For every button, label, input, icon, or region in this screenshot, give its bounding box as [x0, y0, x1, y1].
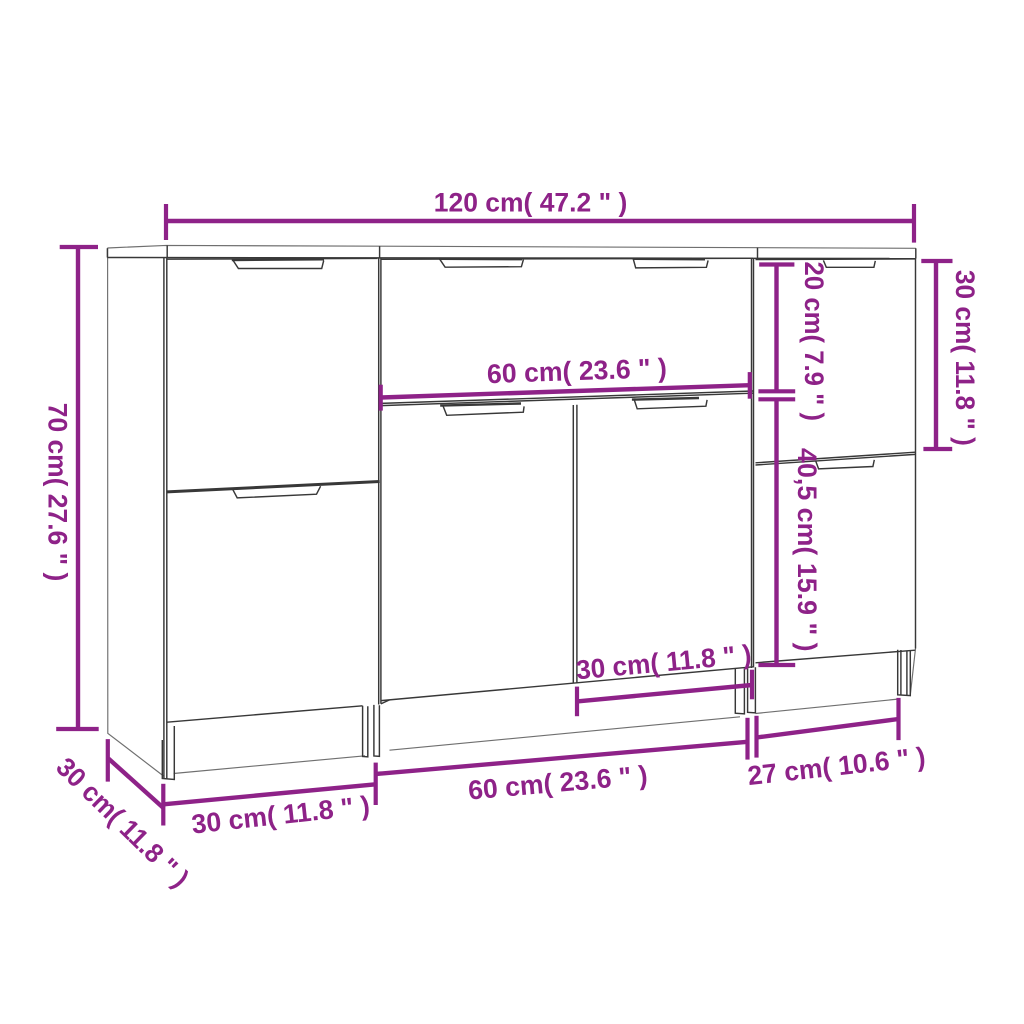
svg-text:30 cm( 11.8 " ): 30 cm( 11.8 " ) — [950, 270, 980, 446]
svg-text:70 cm( 27.6 " ): 70 cm( 27.6 " ) — [43, 403, 73, 582]
svg-text:20 cm( 7.9 " ): 20 cm( 7.9 " ) — [799, 262, 829, 422]
svg-text:60 cm( 23.6 " ): 60 cm( 23.6 " ) — [486, 353, 667, 389]
svg-text:120 cm( 47.2 " ): 120 cm( 47.2 " ) — [434, 188, 628, 218]
svg-text:40,5 cm( 15.9 " ): 40,5 cm( 15.9 " ) — [792, 448, 822, 652]
